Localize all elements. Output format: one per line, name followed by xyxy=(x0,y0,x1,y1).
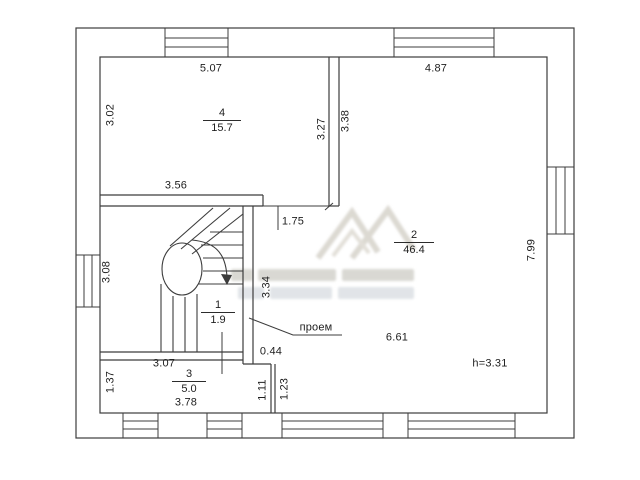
room-4-number: 4 xyxy=(203,107,241,121)
dim-room3-top: 3.07 xyxy=(153,359,175,370)
exterior-walls xyxy=(76,28,574,438)
dim-hall-opening: 1.75 xyxy=(282,217,304,228)
dim-stair-left: 3.08 xyxy=(102,261,113,283)
dim-stair-right: 3.34 xyxy=(262,276,273,298)
dim-room3-bottom: 3.78 xyxy=(175,398,197,409)
room-2-number: 2 xyxy=(394,229,434,243)
dim-room2-lower: 6.61 xyxy=(386,333,408,344)
stair-direction-arrowhead xyxy=(221,274,232,285)
room-3-number: 3 xyxy=(172,368,206,382)
room-2-label: 2 46.4 xyxy=(394,229,434,256)
opening-label: проем xyxy=(300,323,333,334)
dim-room2-left-upper: 3.38 xyxy=(341,110,352,132)
dim-step-offset: 0.44 xyxy=(260,347,282,358)
room-4-label: 4 15.7 xyxy=(203,107,241,134)
dim-room4-right: 3.27 xyxy=(317,118,328,140)
dim-room2-right: 7.99 xyxy=(527,239,538,261)
dim-niche-right: 1.23 xyxy=(280,378,291,400)
dim-room4-top: 5.07 xyxy=(200,64,222,75)
dim-room4-bottom: 3.56 xyxy=(165,181,187,192)
watermark xyxy=(231,210,414,299)
window-symbols xyxy=(76,28,574,438)
floor-plan-scan: 4 15.7 2 46.4 1 1.9 3 5.0 5.07 4.87 3.56… xyxy=(0,0,640,480)
room-3-label: 3 5.0 xyxy=(172,368,206,395)
room-1-number: 1 xyxy=(201,299,235,313)
dim-niche-left: 1.11 xyxy=(258,379,269,400)
room-4-area: 15.7 xyxy=(203,121,241,134)
dim-room3-left: 1.37 xyxy=(106,371,117,393)
dim-room2-top: 4.87 xyxy=(425,64,447,75)
ceiling-height-note: h=3.31 xyxy=(472,359,507,370)
dim-room4-left: 3.02 xyxy=(106,104,117,126)
room-2-area: 46.4 xyxy=(394,243,434,256)
room-1-label: 1 1.9 xyxy=(201,299,235,326)
room-1-area: 1.9 xyxy=(201,313,235,326)
room-3-area: 5.0 xyxy=(172,382,206,395)
floor-plan-linework xyxy=(0,0,640,480)
staircase xyxy=(161,208,243,352)
